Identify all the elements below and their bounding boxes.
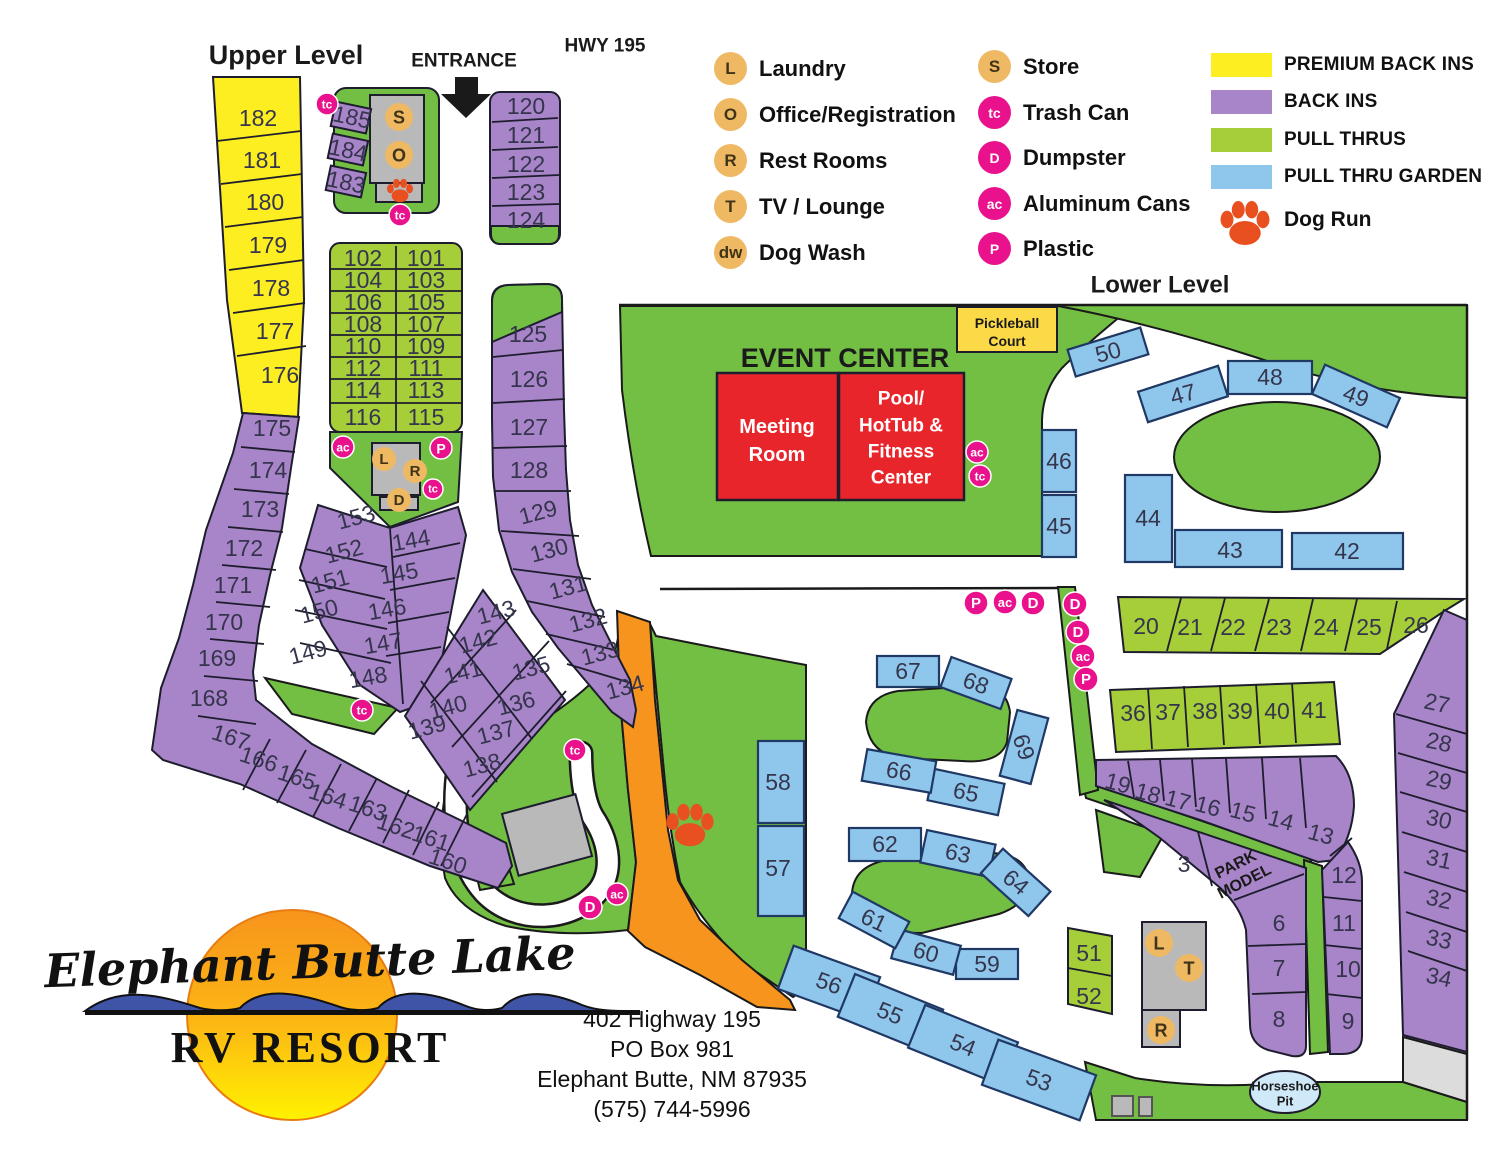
utility-square-1 xyxy=(1112,1096,1133,1116)
recycle-marker-tc: tc xyxy=(389,204,411,226)
site-label-41: 41 xyxy=(1301,697,1327,723)
recycle-marker-ac: ac xyxy=(966,441,988,463)
marker-letter: ac xyxy=(970,446,984,460)
site-label-175: 175 xyxy=(253,415,291,441)
site-label-30: 30 xyxy=(1424,804,1454,835)
recycle-marker-ac: ac xyxy=(606,883,628,905)
recycle-marker-D: D xyxy=(578,895,602,919)
marker-letter: D xyxy=(1028,595,1039,612)
site-label-52: 52 xyxy=(1076,983,1102,1009)
site-label-115: 115 xyxy=(408,404,445,430)
site-label-149: 149 xyxy=(286,634,330,669)
recycle-marker-P: P xyxy=(964,591,988,615)
marker-letter: D xyxy=(585,899,596,916)
marker-letter: tc xyxy=(975,470,986,484)
site-label-172: 172 xyxy=(225,535,263,561)
lower-level-title: Lower Level xyxy=(1091,272,1230,299)
site-label-176: 176 xyxy=(261,362,299,388)
pool-label: Fitness xyxy=(868,442,935,463)
address-line: Elephant Butte, NM 87935 xyxy=(512,1064,832,1094)
legend-item-laundry: L Laundry xyxy=(714,52,846,85)
site-label-38: 38 xyxy=(1192,698,1218,724)
legend-label: Office/Registration xyxy=(759,102,956,128)
site-label-26: 26 xyxy=(1403,612,1429,638)
site-label-24: 24 xyxy=(1313,614,1339,640)
green-road-ne xyxy=(1058,587,1098,795)
marker-letter: tc xyxy=(395,209,406,223)
site-label-116: 116 xyxy=(345,404,382,430)
restrooms-icon: R xyxy=(714,144,747,177)
utility-square-2 xyxy=(1139,1097,1152,1116)
pool-label: HotTub & xyxy=(859,416,943,437)
site-label-123: 123 xyxy=(507,179,545,205)
site-label-127: 127 xyxy=(510,414,548,440)
site-label-128: 128 xyxy=(510,457,548,483)
site-label-122: 122 xyxy=(507,151,545,177)
site-label-180: 180 xyxy=(246,189,284,215)
site-label-168: 168 xyxy=(190,685,228,711)
legend-item-store: S Store xyxy=(978,50,1079,83)
marker-letter: tc xyxy=(570,744,581,758)
legend-item-plastic: P Plastic xyxy=(978,232,1094,265)
entrance-arrow-icon xyxy=(441,77,491,118)
legend-item-back-ins: BACK INS xyxy=(1211,90,1377,114)
marker-letter: P xyxy=(971,595,981,612)
site-label-177: 177 xyxy=(256,318,294,344)
marker-letter: R xyxy=(1155,1021,1168,1041)
legend-label: PULL THRUS xyxy=(1284,129,1406,151)
site-label-51: 51 xyxy=(1076,940,1102,966)
site-label-11: 11 xyxy=(1332,910,1356,936)
legend-label: PREMIUM BACK INS xyxy=(1284,54,1474,76)
recycle-marker-D: D xyxy=(1021,591,1045,615)
marker-letter: L xyxy=(379,451,388,468)
legend-item-pull-thru-garden: PULL THRU GARDEN xyxy=(1211,165,1482,189)
site-label-45: 45 xyxy=(1046,513,1072,539)
logo-rv-resort-text: RV RESORT xyxy=(60,1022,560,1073)
address-line: 402 Highway 195 xyxy=(512,1004,832,1034)
tv-lounge-icon: T xyxy=(714,190,747,223)
legend-item-dog-wash: dw Dog Wash xyxy=(714,236,866,269)
site-label-126: 126 xyxy=(510,366,548,392)
legend-item-pull-thrus: PULL THRUS xyxy=(1211,128,1406,152)
legend-item-dog-run: Dog Run xyxy=(1211,208,1371,232)
marker-letter: O xyxy=(392,146,406,166)
legend-label: Dog Wash xyxy=(759,240,866,266)
legend-item-aluminum-cans: ac Aluminum Cans xyxy=(978,187,1190,220)
marker-letter: ac xyxy=(1076,649,1090,664)
back-ins-swatch xyxy=(1211,90,1272,114)
marker-letter: D xyxy=(1073,624,1084,641)
marker-letter: D xyxy=(1070,596,1081,613)
site-label-32: 32 xyxy=(1424,884,1454,915)
site-label-37: 37 xyxy=(1155,699,1181,725)
marker-letter: tc xyxy=(357,704,368,718)
facility-marker-T: T xyxy=(1175,954,1203,982)
site-label-22: 22 xyxy=(1220,614,1246,640)
site-label-43: 43 xyxy=(1217,537,1243,563)
laundry-icon: L xyxy=(714,52,747,85)
site-label-169: 169 xyxy=(198,645,236,671)
legend-label: Store xyxy=(1023,54,1079,80)
facility-marker-S: S xyxy=(385,103,413,131)
site-label-39: 39 xyxy=(1227,698,1253,724)
pool-label: Center xyxy=(871,468,932,489)
event-center-title: EVENT CENTER xyxy=(741,343,950,373)
meeting-room-label: Meeting xyxy=(739,416,815,438)
marker-letter: tc xyxy=(428,484,438,496)
plastic-icon: P xyxy=(978,232,1011,265)
site-label-124: 124 xyxy=(507,207,546,233)
marker-letter: P xyxy=(1081,671,1091,688)
dog-run-paw-spacer xyxy=(1211,208,1272,232)
hwy-label: HWY 195 xyxy=(565,36,646,57)
recycle-marker-tc: tc xyxy=(316,93,338,115)
aluminum-cans-icon: ac xyxy=(978,187,1011,220)
site-label-114: 114 xyxy=(345,377,382,403)
facility-marker-D: D xyxy=(387,488,411,512)
site-label-28: 28 xyxy=(1424,727,1454,758)
trash-can-icon: tc xyxy=(978,96,1011,129)
pickleball-label: Court xyxy=(988,333,1026,349)
site-label-20: 20 xyxy=(1133,613,1159,639)
site-label-10: 10 xyxy=(1335,956,1361,982)
site-label-57: 57 xyxy=(765,855,791,881)
dumpster-icon: D xyxy=(978,141,1011,174)
legend-item-trash-can: tc Trash Can xyxy=(978,96,1129,129)
upper-level-title: Upper Level xyxy=(209,40,364,70)
marker-letter: ac xyxy=(998,595,1012,610)
pull-thru-garden-swatch xyxy=(1211,165,1272,189)
facility-marker-O: O xyxy=(385,141,413,169)
site-label-8: 8 xyxy=(1273,1006,1286,1032)
site-label-40: 40 xyxy=(1264,698,1290,724)
marker-letter: R xyxy=(410,463,421,480)
site-label-36: 36 xyxy=(1120,700,1146,726)
entrance-label: ENTRANCE xyxy=(411,51,517,72)
pull-thrus-swatch xyxy=(1211,128,1272,152)
site-label-33: 33 xyxy=(1424,924,1454,955)
recycle-marker-P: P xyxy=(1074,667,1098,691)
premium-back-ins-swatch xyxy=(1211,53,1272,77)
site-label-46: 46 xyxy=(1046,448,1072,474)
site-label-174: 174 xyxy=(249,457,288,483)
recycle-marker-tc: tc xyxy=(564,739,586,761)
legend-label: Dumpster xyxy=(1023,145,1126,171)
site-label-9: 9 xyxy=(1342,1008,1355,1034)
marker-letter: L xyxy=(1154,934,1165,954)
meeting-room-label: Room xyxy=(749,444,806,466)
legend-item-office: O Office/Registration xyxy=(714,98,956,131)
site-label-6: 6 xyxy=(1273,910,1286,936)
site-label-170: 170 xyxy=(205,609,243,635)
legend-item-premium-back-ins: PREMIUM BACK INS xyxy=(1211,53,1474,77)
site-label-23: 23 xyxy=(1266,614,1292,640)
legend-label: Aluminum Cans xyxy=(1023,191,1190,217)
site-label-62: 62 xyxy=(872,831,898,857)
marker-letter: ac xyxy=(610,888,624,902)
legend-label: Rest Rooms xyxy=(759,148,887,174)
recycle-marker-P: P xyxy=(430,437,452,459)
site-label-59: 59 xyxy=(974,951,1000,977)
site-label-65: 65 xyxy=(951,777,981,808)
legend-label: BACK INS xyxy=(1284,91,1377,113)
facility-marker-R: R xyxy=(1147,1016,1175,1044)
site-label-66: 66 xyxy=(884,756,914,786)
marker-letter: tc xyxy=(322,98,333,112)
site-label-120: 120 xyxy=(507,93,545,119)
site-label-31: 31 xyxy=(1424,844,1454,875)
horseshoe-label: Horseshoe xyxy=(1251,1079,1318,1094)
site-label-3: 3 xyxy=(1178,851,1191,877)
site-label-171: 171 xyxy=(214,572,252,598)
site-label-63: 63 xyxy=(943,838,973,869)
legend-label: PULL THRU GARDEN xyxy=(1284,166,1482,188)
legend-label: Dog Run xyxy=(1284,208,1371,232)
marker-letter: P xyxy=(436,441,445,457)
legend-item-dumpster: D Dumpster xyxy=(978,141,1126,174)
site-label-29: 29 xyxy=(1424,765,1454,796)
site-label-179: 179 xyxy=(249,232,287,258)
site-label-25: 25 xyxy=(1356,614,1382,640)
legend-label: TV / Lounge xyxy=(759,194,885,220)
site-label-7: 7 xyxy=(1273,955,1286,981)
legend-label: Plastic xyxy=(1023,236,1094,262)
site-label-178: 178 xyxy=(252,275,290,301)
marker-letter: ac xyxy=(336,441,350,455)
address-line: (575) 744-5996 xyxy=(512,1094,832,1124)
grass-oval xyxy=(1174,402,1380,512)
site-label-173: 173 xyxy=(241,496,279,522)
site-label-48: 48 xyxy=(1257,364,1283,390)
marker-letter: S xyxy=(393,108,405,128)
site-label-42: 42 xyxy=(1334,538,1360,564)
site-label-12: 12 xyxy=(1331,862,1357,888)
recycle-marker-ac: ac xyxy=(993,590,1017,614)
recycle-marker-tc: tc xyxy=(351,699,373,721)
recycle-marker-ac: ac xyxy=(1071,644,1095,668)
site-label-58: 58 xyxy=(765,769,791,795)
recycle-marker-tc: tc xyxy=(423,479,443,499)
office-icon: O xyxy=(714,98,747,131)
address-block: 402 Highway 195 PO Box 981 Elephant Butt… xyxy=(512,1004,832,1124)
marker-letter: T xyxy=(1184,959,1195,979)
site-label-27: 27 xyxy=(1422,688,1452,719)
site-label-125: 125 xyxy=(509,321,547,347)
site-label-21: 21 xyxy=(1177,614,1203,640)
facility-marker-L: L xyxy=(372,447,396,471)
store-icon: S xyxy=(978,50,1011,83)
site-label-182: 182 xyxy=(239,105,277,131)
resort-map-page: Upper Level ENTRANCE HWY 195 Lower Level… xyxy=(0,0,1500,1159)
legend-item-tv-lounge: T TV / Lounge xyxy=(714,190,885,223)
facility-marker-L: L xyxy=(1145,929,1173,957)
site-label-113: 113 xyxy=(408,377,445,403)
recycle-marker-D: D xyxy=(1063,592,1087,616)
pool-label: Pool/ xyxy=(878,389,925,410)
site-label-67: 67 xyxy=(895,658,921,684)
pickleball-label: Pickleball xyxy=(975,315,1040,331)
legend-label: Laundry xyxy=(759,56,846,82)
legend-item-restrooms: R Rest Rooms xyxy=(714,144,887,177)
horseshoe-label: Pit xyxy=(1277,1094,1294,1109)
legend-label: Trash Can xyxy=(1023,100,1129,126)
recycle-marker-ac: ac xyxy=(332,436,354,458)
site-label-181: 181 xyxy=(243,147,281,173)
dog-wash-icon: dw xyxy=(714,236,747,269)
site-label-121: 121 xyxy=(507,122,545,148)
facility-marker-R: R xyxy=(403,459,427,483)
recycle-marker-D: D xyxy=(1066,620,1090,644)
marker-letter: D xyxy=(394,492,405,509)
site-label-44: 44 xyxy=(1135,505,1161,531)
recycle-marker-tc: tc xyxy=(969,465,991,487)
address-line: PO Box 981 xyxy=(512,1034,832,1064)
